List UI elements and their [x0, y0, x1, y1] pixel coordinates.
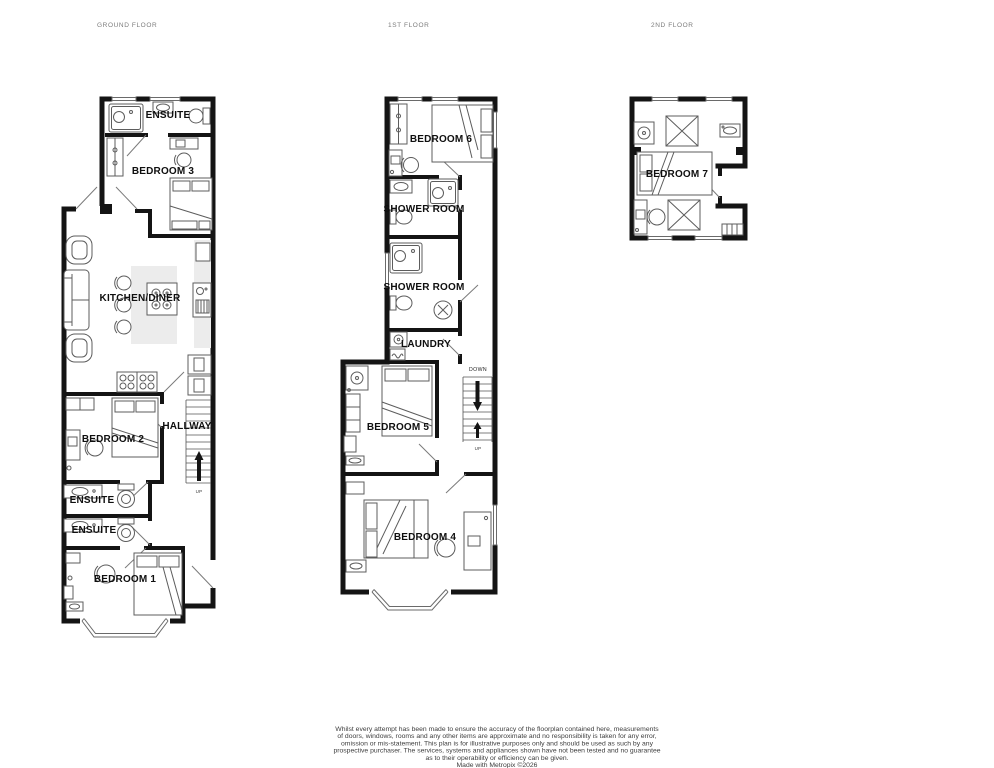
kitchen-sink-symbol	[193, 283, 211, 317]
bench-symbol	[722, 224, 743, 235]
sink-symbol	[720, 124, 740, 137]
disclaimer-line: as to their operability or efficiency ca…	[425, 755, 568, 762]
first-floor-title: 1ST FLOOR	[388, 22, 429, 29]
shower-symbol	[390, 243, 422, 273]
ground-floor-plan: UP ENSUITE BED	[64, 95, 217, 637]
room-label-bedroom7: BEDROOM 7	[646, 169, 709, 180]
side-table-symbol	[66, 553, 80, 563]
room-label-bedroom4: BEDROOM 4	[394, 532, 457, 543]
sofa-symbol	[64, 270, 89, 330]
cabinet-symbol	[66, 398, 94, 410]
shower-symbol	[109, 104, 143, 132]
bed-symbol	[112, 398, 158, 457]
stairs-up-label: UP	[475, 446, 482, 451]
room-label-bedroom6: BEDROOM 6	[410, 134, 473, 145]
laundry-basket-symbol	[390, 349, 405, 360]
room-label-laundry: LAUNDRY	[401, 339, 451, 350]
sink-symbol	[390, 180, 412, 193]
armchair-symbol	[66, 236, 92, 264]
disclaimer-line: omission or mis-statement. This plan is …	[341, 740, 654, 747]
ground-floor-title: GROUND FLOOR	[97, 22, 157, 29]
floorplan-page: GROUND FLOOR 1ST FLOOR 2ND FLOOR	[0, 0, 994, 768]
toilet-symbol	[118, 518, 135, 542]
freezer-unit-symbol	[117, 372, 157, 392]
wardrobe-symbol	[390, 104, 407, 144]
second-floor-plan: BEDROOM 7	[632, 95, 749, 242]
first-floor-plan: DOWN UP BEDROOM 6 SHOWER ROOM SHOWER ROO…	[343, 95, 500, 610]
floor-titles: GROUND FLOOR 1ST FLOOR 2ND FLOOR	[97, 22, 694, 29]
toilet-symbol	[189, 108, 210, 124]
room-label-bedroom5: BEDROOM 5	[367, 422, 430, 433]
floorplan-svg: GROUND FLOOR 1ST FLOOR 2ND FLOOR	[0, 0, 994, 768]
skylight-symbol	[668, 200, 700, 230]
disclaimer-line: Whilst every attempt has been made to en…	[335, 726, 659, 733]
room-label-bedroom1: BEDROOM 1	[94, 574, 157, 585]
side-table-symbol	[346, 560, 366, 572]
second-floor-title: 2ND FLOOR	[651, 22, 694, 29]
shower-symbol	[428, 179, 458, 206]
disclaimer-line: of doors, windows, rooms and any other i…	[337, 733, 656, 740]
room-label-hallway: HALLWAY	[162, 421, 211, 432]
washing-machine-symbol	[634, 122, 654, 144]
stairs-up-label: UP	[196, 489, 203, 494]
side-table-symbol	[346, 482, 364, 494]
room-label-bedroom2: BEDROOM 2	[82, 434, 145, 445]
disclaimer-line: prospective purchaser. The services, sys…	[333, 748, 660, 755]
disclaimer: Whilst every attempt has been made to en…	[333, 726, 660, 768]
wall-pillar	[100, 204, 112, 214]
room-label-shower-upper: SHOWER ROOM	[383, 204, 464, 215]
front-door-gap	[210, 560, 217, 588]
armchair-symbol	[66, 334, 92, 362]
chimney-stub	[736, 147, 745, 155]
toilet-symbol	[390, 296, 412, 310]
room-label-shower-lower: SHOWER ROOM	[383, 282, 464, 293]
room-label-ensuite-mid: ENSUITE	[70, 495, 115, 506]
room-label-ensuite-top: ENSUITE	[146, 110, 191, 121]
bed-symbol	[170, 178, 212, 230]
dining-chair-symbol	[115, 276, 131, 334]
made-with-credit: Made with Metropix ©2026	[457, 761, 538, 768]
room-label-ensuite-lower: ENSUITE	[72, 525, 117, 536]
bay-window-gap	[80, 617, 170, 626]
kitchen-door-gap	[76, 206, 100, 213]
wardrobe-symbol	[107, 138, 123, 176]
toilet-symbol	[118, 484, 135, 508]
bay-window-gap	[369, 588, 451, 597]
cabinet-symbol	[196, 243, 210, 261]
stairwell-gap	[741, 168, 749, 204]
room-label-kitchen: KITCHEN/DINER	[100, 293, 182, 304]
sink-symbol	[434, 301, 452, 319]
room-label-bedroom3: BEDROOM 3	[132, 166, 195, 177]
bed-symbol	[364, 500, 428, 558]
skylight-symbol	[666, 116, 698, 146]
vanity-unit-symbol	[346, 366, 368, 390]
stairs-down-label: DOWN	[469, 367, 487, 373]
